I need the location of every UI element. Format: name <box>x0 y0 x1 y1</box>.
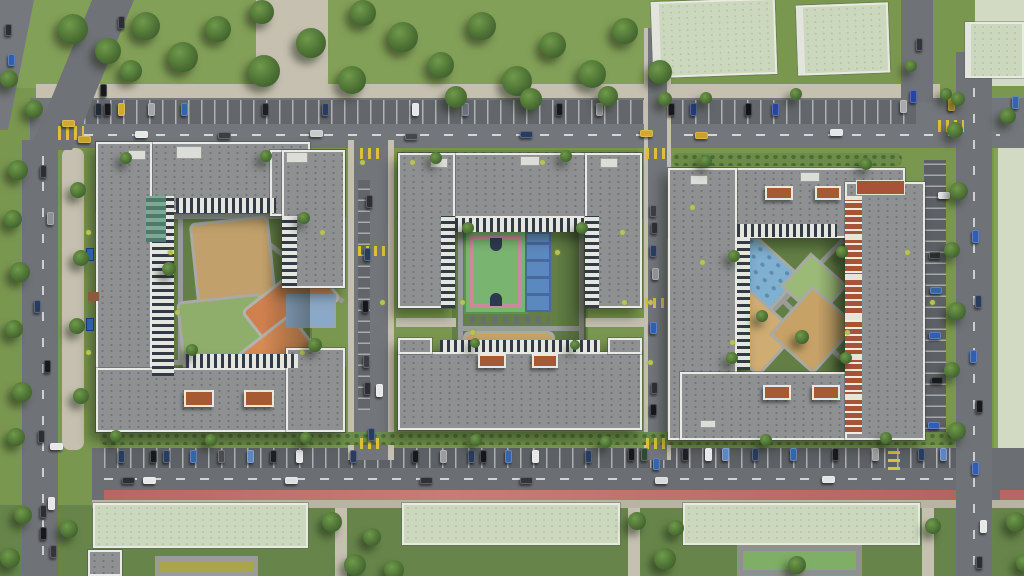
tree <box>468 12 496 40</box>
tree <box>470 434 482 446</box>
tree <box>300 432 312 444</box>
tree <box>944 242 960 258</box>
tree <box>795 330 809 344</box>
tree <box>168 42 198 72</box>
tree <box>5 320 23 338</box>
trees-layer <box>0 0 1024 576</box>
tree <box>944 362 960 378</box>
tree <box>726 352 738 364</box>
tree <box>925 518 941 534</box>
tree <box>7 428 25 446</box>
tree <box>110 430 122 442</box>
tree <box>520 88 542 110</box>
tree <box>760 434 772 446</box>
tree <box>1000 108 1016 124</box>
tree <box>598 86 618 106</box>
tree <box>344 554 366 576</box>
tree <box>260 150 272 162</box>
tree <box>95 38 121 64</box>
tree <box>668 520 684 536</box>
tree <box>700 92 712 104</box>
tree <box>25 100 43 118</box>
tree <box>70 182 86 198</box>
tree <box>700 155 712 167</box>
tree <box>69 318 85 334</box>
tree <box>322 512 342 532</box>
tree <box>73 388 89 404</box>
tree <box>250 0 274 24</box>
tree <box>388 22 418 52</box>
tree <box>162 262 176 276</box>
tree <box>788 556 806 574</box>
tree <box>951 92 965 106</box>
tree <box>628 512 646 530</box>
tree <box>578 60 606 88</box>
tree <box>120 60 142 82</box>
tree <box>14 506 32 524</box>
tree <box>948 302 966 320</box>
tree <box>296 28 326 58</box>
tree <box>1006 512 1024 532</box>
tree <box>790 88 802 100</box>
tree <box>205 434 217 446</box>
tree <box>248 55 280 87</box>
tree <box>12 382 32 402</box>
tree <box>308 338 322 352</box>
tree <box>4 210 22 228</box>
tree <box>430 152 442 164</box>
tree <box>8 160 28 180</box>
tree <box>570 340 580 350</box>
tree <box>648 60 672 84</box>
tree <box>384 560 404 576</box>
tree <box>445 86 467 108</box>
tree <box>860 158 872 170</box>
tree <box>728 250 740 262</box>
tree <box>205 16 231 42</box>
tree <box>950 182 968 200</box>
tree <box>612 18 638 44</box>
tree <box>600 436 612 448</box>
tree <box>73 250 89 266</box>
tree <box>470 338 480 348</box>
aerial-render-scene <box>0 0 1024 576</box>
tree <box>658 92 672 106</box>
tree <box>540 32 566 58</box>
tree <box>298 212 310 224</box>
tree <box>428 52 454 78</box>
tree <box>905 60 917 72</box>
tree <box>0 70 18 88</box>
tree <box>840 352 852 364</box>
tree <box>338 66 366 94</box>
tree <box>836 246 848 258</box>
tree <box>654 548 676 570</box>
tree <box>1016 554 1024 572</box>
tree <box>363 528 381 546</box>
tree <box>560 150 572 162</box>
tree <box>58 14 88 44</box>
tree <box>186 344 198 356</box>
tree <box>880 432 892 444</box>
tree <box>947 122 963 138</box>
tree <box>350 0 376 26</box>
tree <box>120 152 132 164</box>
tree <box>940 88 952 100</box>
tree <box>756 310 768 322</box>
tree <box>60 520 78 538</box>
tree <box>0 548 20 568</box>
tree <box>10 262 30 282</box>
tree <box>948 422 966 440</box>
tree <box>132 12 160 40</box>
tree <box>462 222 474 234</box>
tree <box>576 222 588 234</box>
